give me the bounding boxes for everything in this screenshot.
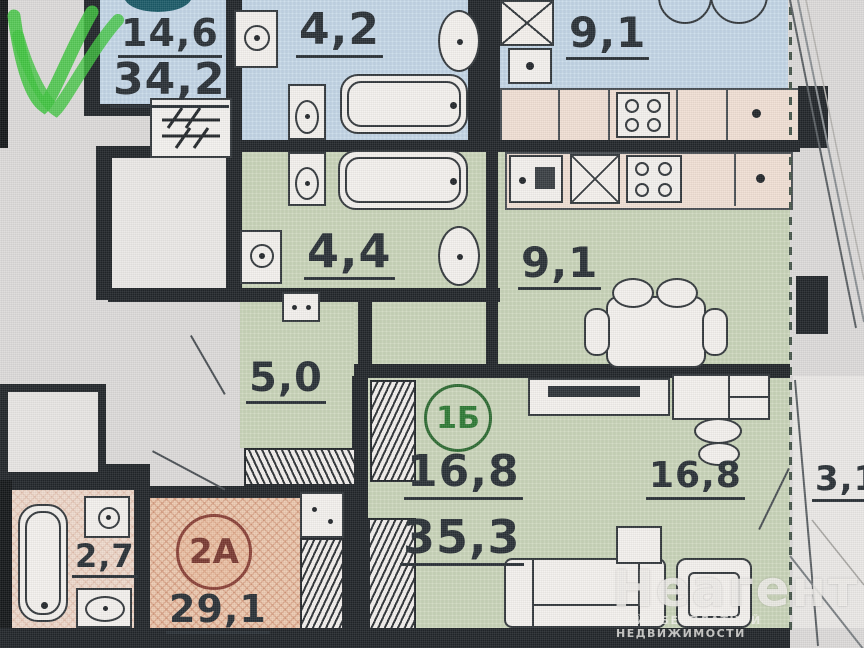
door-swing — [152, 450, 225, 490]
total-label-2a: 29,1 — [166, 590, 270, 634]
fridge-icon — [509, 155, 563, 203]
sink-drain-icon — [752, 109, 761, 118]
floor-plan: 14,6 34,2 4,2 9,1 4,4 9,1 5,0 16,8 35,3 … — [0, 0, 864, 648]
desk-icon — [528, 378, 670, 416]
stool-icon — [694, 418, 742, 444]
washing-machine-icon — [84, 496, 130, 538]
wall — [358, 290, 372, 378]
chair-icon — [702, 308, 728, 356]
facade-boundary-line — [789, 0, 792, 630]
closet-hatch — [300, 538, 344, 630]
chair-icon — [612, 278, 654, 308]
bathtub-icon — [18, 504, 68, 622]
counter-divider — [676, 88, 678, 140]
sink-icon — [76, 588, 132, 628]
counter-divider — [558, 88, 560, 140]
toilet-icon — [438, 226, 480, 286]
area-label-kitchen-mid: 9,1 — [518, 242, 601, 290]
area-label-hall: 5,0 — [246, 358, 326, 404]
closet-hatch — [244, 448, 356, 486]
door-swing — [190, 335, 226, 395]
area-label-bath-top: 4,2 — [296, 8, 383, 58]
sink-drain-icon — [756, 174, 765, 183]
chair-icon — [656, 278, 698, 308]
closet-fixture-icon — [300, 492, 344, 538]
bathtub-icon — [338, 150, 468, 210]
watermark-tagline: САЙТ БЕСПЛАТНОЙ НЕДВИЖИМОСТИ — [616, 614, 864, 640]
counter-divider — [608, 88, 610, 140]
hall-fixture-icon — [282, 292, 320, 322]
sink-drain-icon — [526, 62, 534, 70]
chair-icon — [584, 308, 610, 356]
wall — [108, 288, 232, 302]
wall — [0, 476, 12, 648]
adjacent-room — [0, 384, 106, 480]
counter-divider — [734, 152, 736, 206]
room-checkmark — [112, 158, 228, 288]
wall — [226, 140, 800, 152]
wall — [96, 146, 112, 300]
dining-table-icon — [606, 296, 706, 368]
watermark-brand: Неагент — [612, 560, 859, 618]
area-label-bath-2a: 2,7 — [72, 540, 138, 578]
sink-pedestal-icon — [288, 152, 326, 206]
unit-badge-2a: 2А — [176, 514, 252, 590]
stove-icon — [616, 92, 670, 138]
bathtub-icon — [340, 74, 468, 134]
desk-inner — [548, 386, 640, 397]
stove-icon — [626, 155, 682, 203]
vent-shaft-icon — [570, 154, 620, 204]
washing-machine-icon — [240, 230, 282, 284]
side-table-icon — [616, 526, 662, 564]
wall — [796, 276, 828, 334]
wall — [798, 86, 828, 148]
area-label-studio: 14,6 — [118, 14, 222, 58]
wall — [0, 0, 8, 148]
counter-divider — [726, 88, 728, 140]
unit-badge-1b: 1Б — [424, 384, 492, 452]
total-label-studio: 34,2 — [110, 58, 229, 108]
toilet-icon — [438, 10, 480, 72]
wall — [84, 0, 100, 116]
area-label-kitchen-top: 9,1 — [566, 12, 649, 60]
area-label-balcony: 3,1 — [812, 462, 864, 502]
wardrobe-icon — [672, 374, 770, 420]
sink-pedestal-icon — [288, 84, 326, 140]
area-label-1b-living: 16,8 — [646, 458, 745, 500]
wall — [344, 486, 360, 632]
washing-machine-icon — [234, 10, 278, 68]
area-label-bath-mid: 4,4 — [304, 228, 395, 280]
area-label-1b-room: 16,8 — [404, 450, 523, 500]
fridge-inner — [535, 167, 555, 189]
total-label-1b: 35,3 — [400, 514, 524, 566]
vent-shaft-icon — [500, 0, 554, 46]
wall — [486, 152, 498, 364]
